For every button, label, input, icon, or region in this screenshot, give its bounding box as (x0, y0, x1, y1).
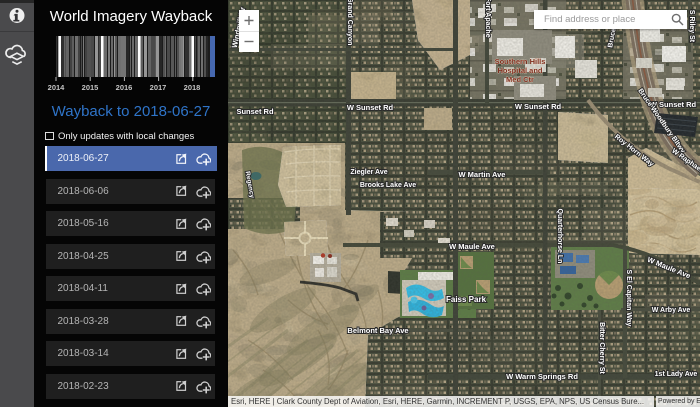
svg-text:Belmont Bay Ave: Belmont Bay Ave (347, 326, 408, 335)
svg-text:S El Capitan Way: S El Capitan Way (625, 270, 632, 327)
svg-text:1st Lady Ave: 1st Lady Ave (655, 371, 698, 378)
svg-text:W Sunset Rd: W Sunset Rd (515, 102, 562, 111)
svg-text:S Fort Apache: S Fort Apache (484, 0, 491, 38)
svg-text:2017: 2017 (150, 83, 167, 92)
svg-text:W Maule Ave: W Maule Ave (449, 242, 495, 251)
svg-text:Ziegler Ave: Ziegler Ave (350, 169, 387, 176)
svg-text:S Grand Canyon: S Grand Canyon (346, 0, 353, 45)
svg-text:Southern Hills: Southern Hills (495, 57, 546, 66)
svg-text:Faiss Park: Faiss Park (446, 295, 487, 304)
svg-text:Sunset Rd: Sunset Rd (236, 107, 274, 116)
svg-text:Hospital and: Hospital and (497, 66, 542, 75)
svg-text:S Riley St: S Riley St (688, 10, 695, 43)
svg-text:2018: 2018 (184, 83, 201, 92)
svg-text:W Warm Springs Rd: W Warm Springs Rd (506, 372, 578, 381)
svg-text:2015: 2015 (82, 83, 99, 92)
svg-text:Bitter Cherry St: Bitter Cherry St (598, 322, 605, 374)
svg-text:W Arby Ave: W Arby Ave (652, 307, 691, 314)
svg-text:2016: 2016 (116, 83, 133, 92)
svg-text:Quarterhorse Ln: Quarterhorse Ln (556, 209, 563, 264)
svg-text:Brooks Lake Ave: Brooks Lake Ave (360, 182, 416, 189)
svg-text:2014: 2014 (48, 83, 66, 92)
svg-text:Med Ctr: Med Ctr (506, 75, 534, 84)
svg-text:W Sunset Rd: W Sunset Rd (347, 103, 394, 112)
svg-text:W Martin Ave: W Martin Ave (459, 170, 506, 179)
